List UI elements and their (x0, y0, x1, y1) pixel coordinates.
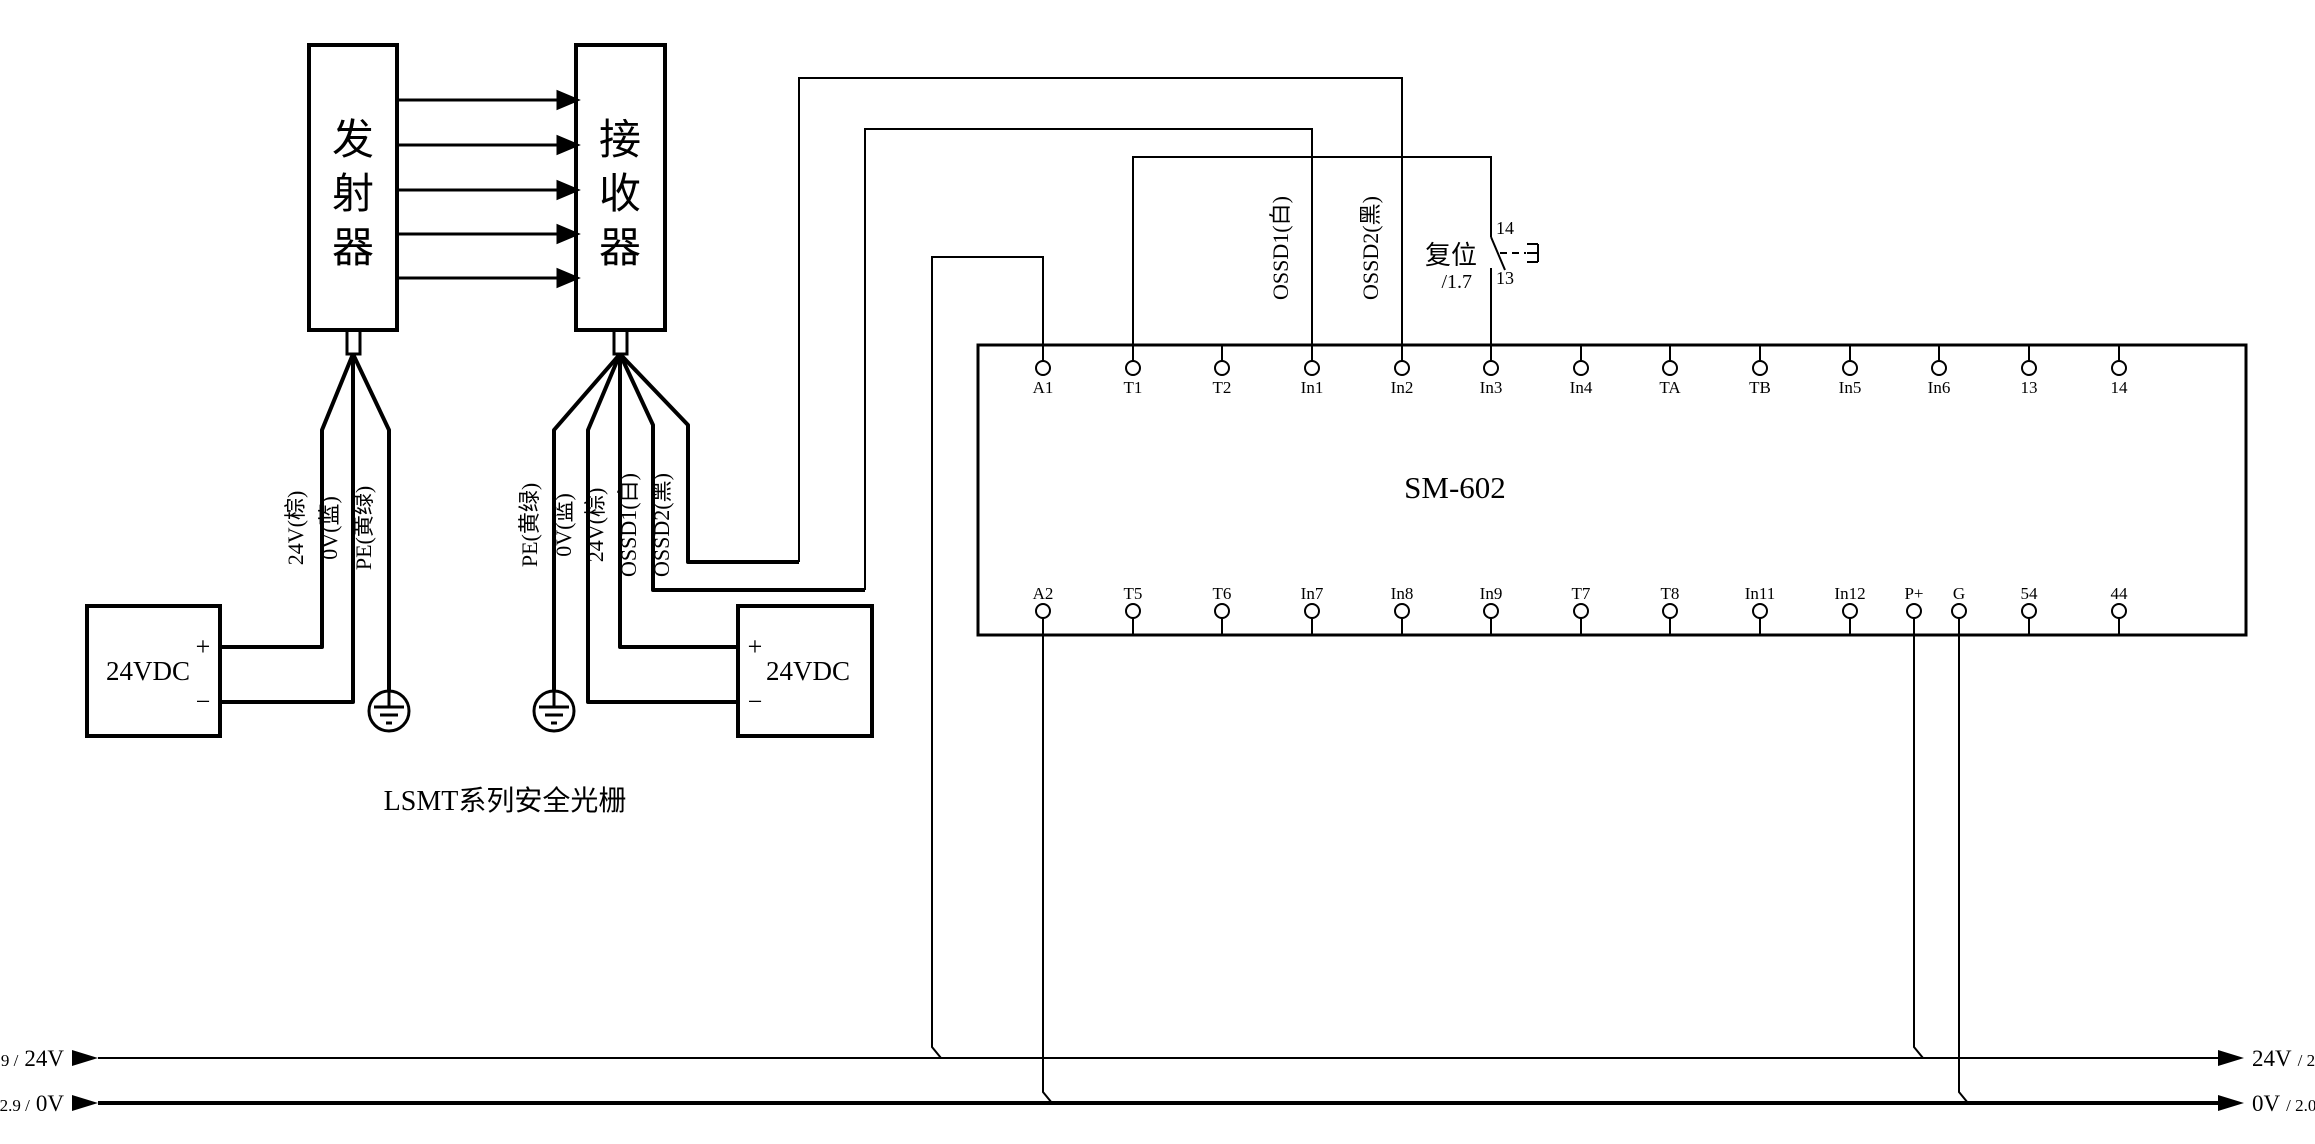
rx-wire-label-ossd1: OSSD1(白) (616, 473, 641, 577)
terminal-pin (1395, 361, 1409, 375)
rail-0v-left-label: 2.9 /0V (0, 1091, 64, 1116)
terminal-In5: In5 (1839, 345, 1862, 397)
receiver-connector (614, 330, 627, 354)
terminal-label: In8 (1391, 584, 1414, 603)
terminal-pin (1036, 604, 1050, 618)
terminal-pin (1395, 604, 1409, 618)
terminal-T8: T8 (1661, 584, 1680, 635)
terminal-label: T8 (1661, 584, 1680, 603)
terminal-pin (2022, 604, 2036, 618)
terminal-label: G (1953, 584, 1965, 603)
terminal-pin (1932, 361, 1946, 375)
rx-wire-label-ossd2: OSSD2(黑) (649, 473, 674, 577)
terminal-label: TB (1749, 378, 1771, 397)
terminal-In7: In7 (1301, 584, 1324, 635)
ossd1-input-label: OSSD1(白) (1268, 196, 1293, 300)
terminal-pin (2022, 361, 2036, 375)
right-supply-plus: + (748, 632, 763, 661)
ossd-routing (799, 78, 1402, 590)
rail-24v-right-label: 24V/ 2.0 (2252, 1046, 2315, 1071)
transmitter-box: 发 射 器 (309, 45, 397, 354)
terminal-In4: In4 (1570, 345, 1593, 397)
receiver-char-3: 器 (599, 226, 641, 272)
terminal-label: In3 (1480, 378, 1503, 397)
rail-0v-left-arrow (72, 1095, 98, 1111)
terminal-A2: A2 (1033, 584, 1054, 635)
reset-actuator-icon (1527, 244, 1538, 262)
terminal-pin (1663, 604, 1677, 618)
terminal-P+: P+ (1904, 584, 1923, 635)
reset-circuit (1133, 157, 1538, 345)
light-beam-arrows (397, 92, 577, 286)
terminal-label: In1 (1301, 378, 1324, 397)
terminal-pin (1305, 361, 1319, 375)
left-supply-plus: + (196, 632, 211, 661)
terminal-label: In11 (1745, 584, 1776, 603)
module-supply-wiring (932, 257, 1968, 1103)
terminal-label: A1 (1033, 378, 1054, 397)
terminal-pin (1574, 604, 1588, 618)
terminal-pin (1753, 604, 1767, 618)
terminal-pin (1036, 361, 1050, 375)
reset-contact-13: 13 (1496, 268, 1514, 288)
terminal-label: In4 (1570, 378, 1593, 397)
terminal-In2: In2 (1391, 345, 1414, 397)
terminal-label: T5 (1124, 584, 1143, 603)
terminal-T7: T7 (1572, 584, 1591, 635)
terminal-In9: In9 (1480, 584, 1503, 635)
receiver-box: 接 收 器 (576, 45, 665, 354)
ossd2-input-label: OSSD2(黑) (1358, 196, 1383, 300)
sm602-module: SM-602 A1T1T2In1In2In3In4TATBIn5In61314 … (978, 345, 2246, 635)
terminal-In11: In11 (1745, 584, 1776, 635)
terminal-label: P+ (1904, 584, 1923, 603)
terminal-pin (1753, 361, 1767, 375)
terminal-13: 13 (2021, 345, 2038, 397)
terminal-pin (1215, 361, 1229, 375)
terminal-label: T6 (1213, 584, 1232, 603)
terminal-In3: In3 (1480, 345, 1503, 397)
transmitter-char-2: 射 (332, 172, 374, 218)
terminal-label: In9 (1480, 584, 1503, 603)
terminal-pin (1843, 604, 1857, 618)
terminal-label: T7 (1572, 584, 1591, 603)
terminal-label: 14 (2111, 378, 2129, 397)
rx-wire-label-pe: PE(黄绿) (517, 483, 542, 567)
tx-wire-label-0v: 0V(蓝) (317, 496, 342, 560)
terminal-pin (2112, 361, 2126, 375)
terminal-label: In5 (1839, 378, 1862, 397)
rail-24v: 2.9 /24V 24V/ 2.0 (0, 1046, 2315, 1071)
terminal-label: A2 (1033, 584, 1054, 603)
terminal-label: TA (1659, 378, 1681, 397)
sm602-bottom-terminals: A2T5T6In7In8In9T7T8In11In12P+G5444 (1033, 584, 2128, 635)
receiver-cable-labels: PE(黄绿) 0V(蓝) 24V(棕) OSSD1(白) OSSD2(黑) (517, 473, 674, 577)
terminal-label: T2 (1213, 378, 1232, 397)
terminal-pin (1126, 361, 1140, 375)
wiring-diagram: 发 射 器 接 收 器 24V(棕) 0V(蓝) PE(黄绿) (0, 0, 2315, 1144)
terminal-14: 14 (2111, 345, 2129, 397)
terminal-pin (1126, 604, 1140, 618)
terminal-pin (1574, 361, 1588, 375)
left-supply-label: 24VDC (106, 656, 190, 686)
sm602-name: SM-602 (1404, 470, 1506, 505)
terminal-pin (1215, 604, 1229, 618)
rail-0v: 2.9 /0V 0V/ 2.0 (0, 1091, 2315, 1116)
reset-ref: /1.7 (1441, 271, 1472, 293)
terminal-In1: In1 (1301, 345, 1324, 397)
transmitter-char-3: 器 (332, 226, 374, 272)
reset-label: 复位 (1425, 241, 1477, 270)
ground-symbol-left (369, 691, 409, 731)
terminal-label: In6 (1928, 378, 1951, 397)
terminal-label: 13 (2021, 378, 2038, 397)
ground-symbol-right (534, 691, 574, 731)
terminal-label: 44 (2111, 584, 2129, 603)
terminal-A1: A1 (1033, 345, 1054, 397)
terminal-pin (1484, 604, 1498, 618)
left-supply-minus: − (196, 687, 211, 716)
transmitter-cable-labels: 24V(棕) 0V(蓝) PE(黄绿) (283, 486, 376, 570)
terminal-pin (1305, 604, 1319, 618)
terminal-44: 44 (2111, 584, 2129, 635)
right-supply-minus: − (748, 687, 763, 716)
terminal-label: In2 (1391, 378, 1414, 397)
terminal-In8: In8 (1391, 584, 1414, 635)
right-supply: 24VDC + − (738, 606, 872, 736)
terminal-pin (1952, 604, 1966, 618)
terminal-pin (1843, 361, 1857, 375)
terminal-pin (1907, 604, 1921, 618)
terminal-TA: TA (1659, 345, 1681, 397)
right-supply-label: 24VDC (766, 656, 850, 686)
terminal-T1: T1 (1124, 345, 1143, 397)
terminal-In12: In12 (1834, 584, 1865, 635)
light-curtain-caption: LSMT系列安全光栅 (384, 785, 627, 817)
transmitter-char-1: 发 (332, 118, 374, 164)
terminal-label: 54 (2021, 584, 2039, 603)
terminal-T5: T5 (1124, 584, 1143, 635)
receiver-char-1: 接 (599, 118, 641, 164)
reset-contact-14: 14 (1496, 218, 1514, 238)
terminal-label: In7 (1301, 584, 1324, 603)
sm602-top-terminals: A1T1T2In1In2In3In4TATBIn5In61314 (1033, 345, 2128, 397)
rx-wire-label-0v: 0V(蓝) (551, 493, 576, 557)
terminal-54: 54 (2021, 584, 2039, 635)
rail-24v-right-arrow (2218, 1050, 2244, 1066)
rail-24v-left-arrow (72, 1050, 98, 1066)
terminal-T2: T2 (1213, 345, 1232, 397)
rail-0v-right-label: 0V/ 2.0 (2252, 1091, 2315, 1116)
terminal-In6: In6 (1928, 345, 1951, 397)
terminal-pin (2112, 604, 2126, 618)
terminal-label: T1 (1124, 378, 1143, 397)
transmitter-connector (347, 330, 360, 354)
rail-24v-left-label: 2.9 /24V (0, 1046, 64, 1071)
rx-wire-label-24v: 24V(棕) (583, 488, 608, 563)
receiver-char-2: 收 (599, 172, 641, 218)
terminal-label: In12 (1834, 584, 1865, 603)
terminal-pin (1484, 361, 1498, 375)
terminal-G: G (1952, 584, 1966, 635)
rail-0v-right-arrow (2218, 1095, 2244, 1111)
left-supply: 24VDC + − (87, 606, 220, 736)
terminal-TB: TB (1749, 345, 1771, 397)
terminal-pin (1663, 361, 1677, 375)
tx-wire-label-pe: PE(黄绿) (351, 486, 376, 570)
tx-wire-label-24v: 24V(棕) (283, 491, 308, 566)
terminal-T6: T6 (1213, 584, 1232, 635)
